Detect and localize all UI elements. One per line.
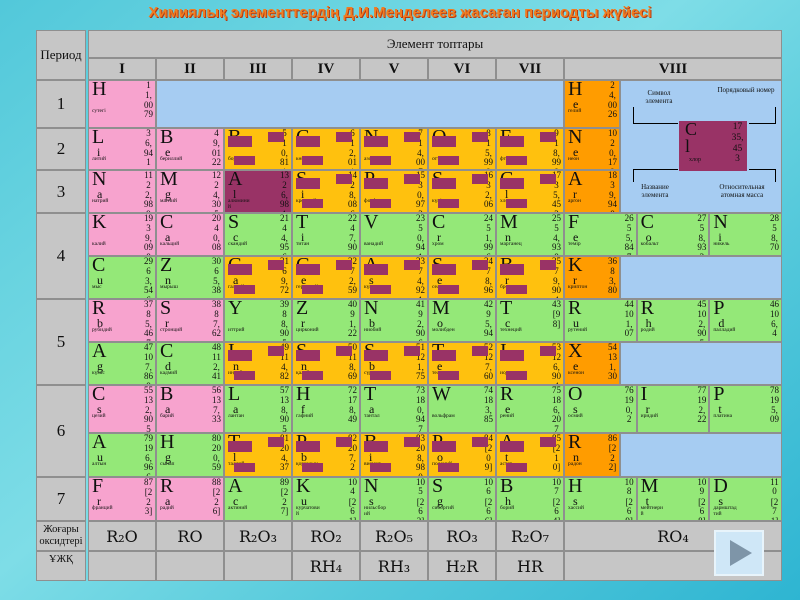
visited-link-highlight (432, 264, 456, 275)
visited-link-highlight (364, 136, 388, 147)
element-symbol: K (92, 213, 106, 234)
atomic-number-and-mass: 44101,07 (624, 300, 635, 339)
element-cell-Pd[interactable]: Pd46106,4палладий (709, 299, 782, 342)
atomic-number-and-mass: 74183,85 (483, 386, 494, 425)
element-name: иттрий (228, 327, 252, 333)
empty-cell (156, 80, 564, 128)
element-name: радон (568, 461, 592, 467)
groups-header: Элемент топтары (88, 30, 782, 58)
element-cell-N[interactable]: N714,007азот (360, 128, 428, 170)
oxide-formula-cell: RO (156, 521, 224, 551)
element-name: сиборгий (432, 505, 456, 511)
element-cell-Ar[interactable]: Ar1839,948аргон (564, 170, 620, 213)
element-cell-Ku[interactable]: Ku104[261]курчатовий (292, 477, 360, 521)
visited-link-highlight (364, 350, 388, 361)
oxide-formula-cell: RO₃ (428, 521, 496, 551)
hydride-formula-cell (156, 551, 224, 581)
element-name: платина (713, 413, 737, 419)
element-cell-C[interactable]: C612,011көміртек (292, 128, 360, 170)
element-cell-Rb[interactable]: Rb3785,467рубидий (88, 299, 156, 342)
element-name: осмий (568, 413, 592, 419)
atomic-number-and-mass: 55132,905 (143, 386, 154, 433)
visited-link-highlight (472, 132, 488, 142)
atomic-number-and-mass: 24,0026 (607, 81, 618, 120)
visited-link-highlight (432, 178, 456, 189)
element-cell-La[interactable]: La57138,905лантан (224, 385, 292, 433)
legend-name-label: Название элемента (629, 183, 681, 200)
atomic-number-and-mass: 104[261] (347, 478, 358, 521)
atomic-number-and-mass: 4091,22 (347, 300, 358, 339)
visited-link-highlight (432, 441, 456, 452)
element-cell-Sb[interactable]: Sb51121,75сүрме (360, 342, 428, 385)
element-cell-Ru[interactable]: Ru44101,07рутений (564, 299, 637, 342)
oxide-formula-cell: RO₂ (292, 521, 360, 551)
legend: Символ элемента Порядковый номер Cl хлор… (620, 80, 782, 213)
element-name: хассий (568, 505, 592, 511)
hydride-formula-cell: RH₄ (292, 551, 360, 581)
element-name: мырыш (160, 284, 184, 290)
element-cell-Mo[interactable]: Mo4295,94молибден (428, 299, 496, 342)
element-cell-Tl[interactable]: Tl81204,37таллий (224, 433, 292, 477)
visited-link-highlight (540, 437, 556, 447)
element-cell-Li[interactable]: Li36,941литий (88, 128, 156, 170)
visited-link-highlight (506, 156, 527, 165)
atomic-number-and-mass: 1020,179 (607, 129, 618, 170)
element-name: ванадий (364, 241, 388, 247)
element-cell-Sg[interactable]: Sg106[266]сиборгий (428, 477, 496, 521)
visited-link-highlight (472, 437, 488, 447)
legend-example-cell: Cl хлор 17 35,453 (679, 121, 747, 171)
atomic-number-and-mass: 72178,49 (347, 386, 358, 425)
element-cell-Ac[interactable]: Ac89[227]актиний (224, 477, 292, 521)
visited-link-highlight (438, 156, 459, 165)
element-cell-Te[interactable]: Te52127,60теллур (428, 342, 496, 385)
element-symbol: V (364, 213, 378, 234)
element-symbol: M (641, 477, 659, 498)
group-header-II: II (156, 58, 224, 80)
element-name: калий (92, 241, 116, 247)
element-cell-Po[interactable]: Po84[209]полоний (428, 433, 496, 477)
oxide-formula-cell: R₂O₇ (496, 521, 564, 551)
element-cell-W[interactable]: W74183,85вольфрам (428, 385, 496, 433)
visited-link-highlight (506, 285, 527, 294)
element-cell-Re[interactable]: Re75186,207рений (496, 385, 564, 433)
element-name: вольфрам (432, 413, 456, 419)
visited-link-highlight (228, 136, 252, 147)
period-label-2: 2 (36, 128, 86, 170)
element-cell-Hs[interactable]: Hs108[269]хассий (564, 477, 637, 521)
play-icon (730, 540, 752, 566)
element-name: иридий (641, 413, 665, 419)
visited-link-highlight (302, 463, 323, 472)
visited-link-highlight (500, 178, 524, 189)
atomic-number-and-mass: 110[271] (769, 478, 780, 521)
element-cell-Kr[interactable]: Kr3683,80криптон (564, 256, 620, 299)
atomic-number-and-mass: 1326,981 (279, 171, 290, 213)
visited-link-highlight (540, 132, 556, 142)
element-cell-Bh[interactable]: Bh107[264]борий (496, 477, 564, 521)
element-cell-Y[interactable]: Y3988,905иттрий (224, 299, 292, 342)
element-cell-Be[interactable]: Be49,0122бериллий (156, 128, 224, 170)
element-cell-Al[interactable]: Al1326,981алюминий (224, 170, 292, 213)
visited-link-highlight (302, 199, 323, 208)
element-cell-V[interactable]: V2350,941ванадий (360, 213, 428, 256)
visited-link-highlight (370, 285, 391, 294)
atomic-number-and-mass: 1939,098 (143, 214, 154, 256)
atomic-number-and-mass: 108[269] (624, 478, 635, 521)
element-name: стронций (160, 327, 184, 333)
legend-example-name: хлор (689, 157, 701, 163)
atomic-number-and-mass: 36,941 (143, 129, 154, 168)
element-name: молибден (432, 327, 456, 333)
atomic-number-and-mass: 2858,70 (769, 214, 780, 253)
atomic-number-and-mass: 75186,207 (551, 386, 562, 433)
atomic-number-and-mass: 89[227] (279, 478, 290, 517)
element-cell-Pt[interactable]: Pt78195,09платина (709, 385, 782, 433)
visited-link-highlight (370, 371, 391, 380)
element-name: кобальт (641, 241, 665, 247)
element-cell-H[interactable]: H11,0079сутегі (88, 80, 156, 128)
element-name: күміс (92, 370, 116, 376)
element-cell-Fr[interactable]: Fr87[223]франций (88, 477, 156, 521)
element-cell-Bi[interactable]: Bi83208,980висмут (360, 433, 428, 477)
element-name: актиний (228, 505, 252, 511)
element-name: курчатовий (296, 505, 320, 518)
element-cell-Cu[interactable]: Cu2963,546мыс (88, 256, 156, 299)
atomic-number-and-mass: 4295,94 (483, 300, 494, 339)
element-cell-Se[interactable]: Se3478,96селен (428, 256, 496, 299)
legend-connector-line (749, 107, 776, 124)
visited-link-highlight (500, 136, 524, 147)
group-header-I: I (88, 58, 156, 80)
element-name: алюминий (228, 198, 252, 211)
element-name: родий (641, 327, 665, 333)
element-cell-Cl[interactable]: Cl1735,453хлор (496, 170, 564, 213)
element-cell-He[interactable]: He24,0026гелий (564, 80, 620, 128)
element-cell-Cr[interactable]: Cr2451,996хром (428, 213, 496, 256)
element-name: тантал (364, 413, 388, 419)
group-header-VIII: VIII (564, 58, 782, 80)
element-name: палладий (713, 327, 737, 333)
visited-link-highlight (472, 174, 488, 184)
oxide-formula-cell: R₂O₃ (224, 521, 292, 551)
empty-cell (620, 342, 782, 385)
element-name: сынап (160, 461, 184, 467)
element-cell-Pb[interactable]: Pb82207,2қорғасын (292, 433, 360, 477)
visited-link-highlight (296, 136, 320, 147)
element-cell-At[interactable]: At85[210]астат (496, 433, 564, 477)
atomic-number-and-mass: 2247,90 (347, 214, 358, 253)
element-cell-Ge[interactable]: Ge3272,59германий (292, 256, 360, 299)
visited-link-highlight (228, 441, 252, 452)
element-cell-Mt[interactable]: Mt109[268]мейтнерий (637, 477, 710, 521)
atomic-number-and-mass: 105[262] (415, 478, 426, 521)
visited-link-highlight (404, 346, 420, 356)
visited-link-highlight (540, 260, 556, 270)
atomic-number-and-mass: 11,0079 (143, 81, 154, 120)
visited-link-highlight (268, 132, 284, 142)
atomic-number-and-mass: 87[223] (143, 478, 154, 517)
visited-link-highlight (336, 260, 352, 270)
element-name: кадмий (160, 370, 184, 376)
element-name: магний (160, 198, 184, 204)
atomic-number-and-mass: 2144,956 (279, 214, 290, 256)
element-name: никель (713, 241, 737, 247)
atomic-number-and-mass: 77192,22 (696, 386, 707, 425)
atomic-number-and-mass: 88[226] (211, 478, 222, 517)
atomic-number-and-mass: 2963,546 (143, 257, 154, 299)
atomic-number-and-mass: 48112,41 (211, 343, 222, 382)
element-cell-Ga[interactable]: Ga3169,72галлий (224, 256, 292, 299)
element-cell-Zn[interactable]: Zn3065,38мырыш (156, 256, 224, 299)
element-name: скандий (228, 241, 252, 247)
element-cell-Ns[interactable]: Ns105[262]нильсборий (360, 477, 428, 521)
element-cell-Sc[interactable]: Sc2144,956скандий (224, 213, 292, 256)
element-cell-Na[interactable]: Na1122,989натрий (88, 170, 156, 213)
atomic-number-and-mass: 86[222] (607, 434, 618, 473)
slide-title: Химиялық элементтердің Д.И.Менделеев жас… (0, 4, 800, 21)
atomic-number-and-mass: 76190,2 (624, 386, 635, 425)
element-name: радий (160, 505, 184, 511)
element-name: бериллий (160, 156, 184, 162)
atomic-number-and-mass: 73180,947 (415, 386, 426, 433)
legend-number-label: Порядковый номер (717, 86, 775, 94)
element-cell-P[interactable]: P1530,973фосфор (360, 170, 428, 213)
element-cell-K[interactable]: K1939,098калий (88, 213, 156, 256)
atomic-number-and-mass: 3065,38 (211, 257, 222, 296)
element-name: борий (500, 505, 524, 511)
legend-connector-line (633, 107, 678, 124)
hydride-formula-cell (224, 551, 292, 581)
visited-link-highlight (438, 285, 459, 294)
visited-link-highlight (500, 350, 524, 361)
legend-mass-label: Относительная атомная масса (707, 183, 777, 200)
atomic-number-and-mass: 1122,989 (143, 171, 154, 213)
element-cell-S[interactable]: S1632,06күкірт (428, 170, 496, 213)
visited-link-highlight (404, 132, 420, 142)
element-name: мыс (92, 284, 116, 290)
element-cell-Sn[interactable]: Sn50118,69қалайы (292, 342, 360, 385)
visited-link-highlight (268, 260, 284, 270)
element-cell-Xe[interactable]: Xe54131,30ксенон (564, 342, 620, 385)
element-cell-Cd[interactable]: Cd48112,41кадмий (156, 342, 224, 385)
atomic-number-and-mass: 3785,467 (143, 300, 154, 342)
period-column-header: Период (36, 30, 86, 80)
element-name: темір (568, 241, 592, 247)
element-cell-Ni[interactable]: Ni2858,70никель (709, 213, 782, 256)
element-cell-Rn[interactable]: Rn86[222]радон (564, 433, 620, 477)
atomic-number-and-mass: 79196,966 (143, 434, 154, 477)
element-name: рений (500, 413, 524, 419)
atomic-number-and-mass: 1224,305 (211, 171, 222, 213)
element-name: лантан (228, 413, 252, 419)
atomic-number-and-mass: 2350,941 (415, 214, 426, 256)
element-name: неон (568, 156, 592, 162)
empty-cell (620, 256, 782, 299)
element-name: марганец (500, 241, 524, 247)
oxides-row-label: Жоғары оксидтері (36, 521, 86, 551)
element-name: аргон (568, 198, 592, 204)
visited-link-highlight (472, 346, 488, 356)
visited-link-highlight (438, 371, 459, 380)
atomic-number-and-mass: 49,0122 (211, 129, 222, 168)
visited-link-highlight (302, 285, 323, 294)
legend-example-symbol: Cl (685, 121, 701, 155)
visited-link-highlight (234, 371, 255, 380)
element-cell-O[interactable]: O815,999оттек (428, 128, 496, 170)
atomic-number-and-mass: 78195,09 (769, 386, 780, 425)
element-cell-Mn[interactable]: Mn2554,938марганец (496, 213, 564, 256)
atomic-number-and-mass: 45102,905 (696, 300, 707, 342)
period-label-7: 7 (36, 477, 86, 521)
visited-link-highlight (506, 199, 527, 208)
element-cell-I[interactable]: I53126,904иод (496, 342, 564, 385)
legend-connector-line (749, 169, 776, 182)
element-cell-Mg[interactable]: Mg1224,305магний (156, 170, 224, 213)
next-slide-button[interactable] (714, 530, 764, 576)
atomic-number-and-mass: 80200,59 (211, 434, 222, 473)
volatile-row-label: ҰЖҚ (36, 551, 86, 581)
oxide-formula-cell: R₂O (88, 521, 156, 551)
element-cell-Zr[interactable]: Zr4091,22цирконий (292, 299, 360, 342)
period-label-6: 6 (36, 385, 86, 477)
element-name: цирконий (296, 327, 320, 333)
element-cell-Hg[interactable]: Hg80200,59сынап (156, 433, 224, 477)
atomic-number-and-mass: 47107,868 (143, 343, 154, 385)
atomic-number-and-mass: 43[98] (551, 300, 562, 329)
element-name: криптон (568, 284, 592, 290)
period-label-5: 5 (36, 299, 86, 385)
legend-example-number: 17 (733, 122, 743, 132)
element-name: литий (92, 156, 116, 162)
group-header-IV: IV (292, 58, 360, 80)
atomic-number-and-mass: 54131,30 (607, 343, 618, 382)
visited-link-highlight (506, 371, 527, 380)
visited-link-highlight (336, 346, 352, 356)
element-name: мейтнерий (641, 505, 665, 518)
legend-symbol-label: Символ элемента (637, 89, 681, 106)
element-cell-As[interactable]: As3374,921күшән (360, 256, 428, 299)
element-cell-Ds[interactable]: Ds110[271]дармштадтий (709, 477, 782, 521)
element-cell-Hf[interactable]: Hf72178,49гафний (292, 385, 360, 433)
atomic-number-and-mass: 3683,80 (607, 257, 618, 296)
element-name: франций (92, 505, 116, 511)
hydride-formula-cell: RH₃ (360, 551, 428, 581)
element-name: ниобий (364, 327, 388, 333)
atomic-number-and-mass: 2655,847 (624, 214, 635, 256)
element-cell-Ag[interactable]: Ag47107,868күміс (88, 342, 156, 385)
visited-link-highlight (336, 132, 352, 142)
visited-link-highlight (432, 136, 456, 147)
element-cell-Nb[interactable]: Nb4192,906ниобий (360, 299, 428, 342)
atomic-number-and-mass: 56137,33 (211, 386, 222, 425)
element-symbol: H (92, 80, 106, 101)
visited-link-highlight (404, 437, 420, 447)
group-header-VI: VI (428, 58, 496, 80)
visited-link-highlight (540, 174, 556, 184)
element-cell-Si[interactable]: Si1428,086кремний (292, 170, 360, 213)
visited-link-highlight (296, 264, 320, 275)
element-symbol: W (432, 385, 451, 406)
visited-link-highlight (540, 346, 556, 356)
visited-link-highlight (296, 441, 320, 452)
element-cell-Ra[interactable]: Ra88[226]радий (156, 477, 224, 521)
period-label-4: 4 (36, 213, 86, 299)
atomic-number-and-mass: 46106,4 (769, 300, 780, 339)
group-header-V: V (360, 58, 428, 80)
presentation-slide: Химиялық элементтердің Д.И.Менделеев жас… (0, 0, 800, 600)
atomic-number-and-mass: 106[266] (483, 478, 494, 521)
visited-link-highlight (370, 463, 391, 472)
element-cell-Br[interactable]: Br3579,904бром (496, 256, 564, 299)
element-name: натрий (92, 198, 116, 204)
visited-link-highlight (506, 463, 527, 472)
element-name: дармштадтий (713, 505, 737, 518)
period-label-3: 3 (36, 170, 86, 213)
element-cell-Ne[interactable]: Ne1020,179неон (564, 128, 620, 170)
element-name: ксенон (568, 370, 592, 376)
element-cell-Ti[interactable]: Ti2247,90титан (292, 213, 360, 256)
element-cell-Tc[interactable]: Tc43[98]технеций (496, 299, 564, 342)
atomic-number-and-mass: 3887,62 (211, 300, 222, 339)
periodic-table: Символ элемента Порядковый номер Cl хлор… (36, 30, 782, 581)
element-name: рутений (568, 327, 592, 333)
element-name: нильсборий (364, 505, 388, 518)
visited-link-highlight (296, 178, 320, 189)
visited-link-highlight (364, 441, 388, 452)
visited-link-highlight (268, 346, 284, 356)
element-name: титан (296, 241, 320, 247)
visited-link-highlight (336, 174, 352, 184)
atomic-number-and-mass: 57138,905 (279, 386, 290, 433)
element-name: технеций (500, 327, 524, 333)
period-label-1: 1 (36, 80, 86, 128)
visited-link-highlight (234, 285, 255, 294)
element-cell-Ta[interactable]: Ta73180,947тантал (360, 385, 428, 433)
element-cell-Fe[interactable]: Fe2655,847темір (564, 213, 637, 256)
element-cell-Ca[interactable]: Ca2040,08кальций (156, 213, 224, 256)
element-name: сутегі (92, 108, 116, 114)
element-name: рубидий (92, 327, 116, 333)
element-name: алтын (92, 461, 116, 467)
atomic-number-and-mass: 4192,906 (415, 300, 426, 342)
visited-link-highlight (364, 178, 388, 189)
element-cell-B[interactable]: B510,811бор (224, 128, 292, 170)
element-cell-Au[interactable]: Au79196,966алтын (88, 433, 156, 477)
element-cell-In[interactable]: In49114,82индий (224, 342, 292, 385)
element-cell-Cs[interactable]: Cs55132,905цезий (88, 385, 156, 433)
atomic-number-and-mass: 2040,08 (211, 214, 222, 253)
element-cell-Sr[interactable]: Sr3887,62стронций (156, 299, 224, 342)
visited-link-highlight (296, 350, 320, 361)
visited-link-highlight (438, 199, 459, 208)
element-cell-Os[interactable]: Os76190,2осмий (564, 385, 637, 433)
element-cell-Co[interactable]: Co2758,933кобальт (637, 213, 710, 256)
atomic-number-and-mass: 2451,996 (483, 214, 494, 256)
element-cell-Ba[interactable]: Ba56137,33барий (156, 385, 224, 433)
element-cell-Rh[interactable]: Rh45102,905родий (637, 299, 710, 342)
visited-link-highlight (438, 463, 459, 472)
element-name: гелий (568, 108, 592, 114)
element-cell-Ir[interactable]: Ir77192,22иридий (637, 385, 710, 433)
group-header-III: III (224, 58, 292, 80)
visited-link-highlight (234, 156, 255, 165)
atomic-number-and-mass: 3988,905 (279, 300, 290, 342)
visited-link-highlight (404, 174, 420, 184)
visited-link-highlight (228, 350, 252, 361)
element-cell-F[interactable]: F918,998фтор (496, 128, 564, 170)
group-header-VII: VII (496, 58, 564, 80)
